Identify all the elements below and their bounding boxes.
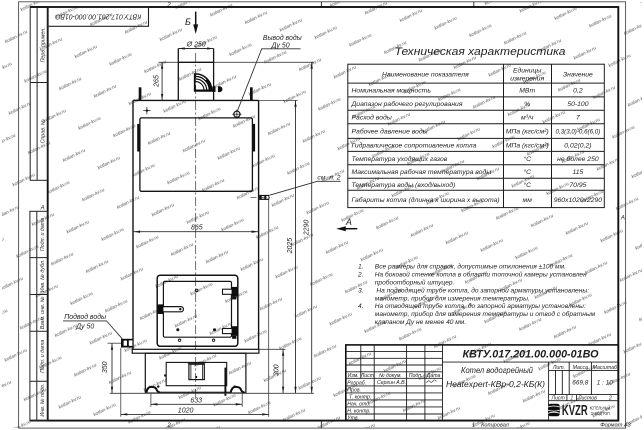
- svg-text:ЗАВОД РЭП: ЗАВОД РЭП: [591, 411, 610, 416]
- svg-text:50-100: 50-100: [567, 101, 588, 108]
- svg-text:На отводящей трубе котла, до з: На отводящей трубе котла, до запорной ар…: [375, 302, 586, 310]
- svg-text:Разраб.: Разраб.: [347, 380, 366, 386]
- svg-text:Инв. № дубл.: Инв. № дубл.: [40, 260, 46, 293]
- svg-text:манометр, прибор для измерения: манометр, прибор для измерения температу…: [375, 294, 530, 302]
- svg-text:960х1020х2290: 960х1020х2290: [554, 197, 603, 204]
- svg-text:4.: 4.: [358, 303, 364, 310]
- svg-text:%: %: [524, 101, 530, 108]
- svg-text:669,8: 669,8: [572, 380, 588, 387]
- svg-text:Расход воды: Расход воды: [352, 114, 392, 122]
- svg-text:МВт: МВт: [519, 88, 535, 95]
- svg-text:Единицы: Единицы: [513, 66, 541, 74]
- svg-text:КВТУ.017.201.00.000-01ВО: КВТУ.017.201.00.000-01ВО: [55, 12, 141, 21]
- svg-text:Максимальная рабочая температу: Максимальная рабочая температура воды: [352, 168, 492, 176]
- svg-text:см. п. 2: см. п. 2: [317, 175, 340, 182]
- svg-text:Н. контр.: Н. контр.: [347, 409, 370, 415]
- svg-text:не более 250: не более 250: [557, 155, 599, 163]
- svg-text:Сергин А.В.: Сергин А.В.: [377, 380, 406, 386]
- svg-text:Листов: Листов: [577, 396, 597, 402]
- svg-text:633: 633: [190, 397, 202, 404]
- svg-text:2025: 2025: [287, 238, 294, 255]
- svg-text:0,02(0,2): 0,02(0,2): [564, 142, 591, 149]
- svg-text:Лит.: Лит.: [552, 365, 565, 371]
- svg-text:Гидравлическое сопротивление к: Гидравлическое сопротивление котла: [352, 141, 477, 149]
- svg-text:Подп.: Подп.: [409, 373, 423, 379]
- svg-text:300: 300: [273, 364, 280, 376]
- svg-text:Габариты котла (длинна х ширин: Габариты котла (длинна х ширина х высота…: [352, 196, 500, 204]
- svg-text:КОТЕЛЬНЫЙ: КОТЕЛЬНЫЙ: [590, 405, 611, 410]
- svg-text:На подводящей трубе котла, до: На подводящей трубе котла, до запорной а…: [376, 287, 589, 295]
- svg-text:Т. контр.: Т. контр.: [349, 394, 371, 400]
- svg-text:Температура воды (вход/выход): Температура воды (вход/выход): [352, 181, 456, 189]
- svg-text:Рабочее давление воды: Рабочее давление воды: [352, 128, 428, 136]
- svg-text:Диапазон рабочего регулировани: Диапазон рабочего регулирования: [351, 100, 463, 108]
- svg-text:Ду 50: Ду 50: [271, 43, 290, 50]
- svg-text:Пров.: Пров.: [347, 387, 361, 393]
- svg-text:Подп. и дата: Подп. и дата: [40, 218, 46, 251]
- svg-text:115: 115: [572, 169, 583, 176]
- svg-text:1: 1: [472, 423, 475, 429]
- svg-text:Значение: Значение: [563, 71, 593, 78]
- svg-text:Инв. № подл.: Инв. № подл.: [40, 384, 46, 417]
- svg-text:°С: °С: [523, 181, 531, 189]
- svg-text:На боковой стенке котла в обла: На боковой стенке котла в области топочн…: [375, 271, 587, 279]
- svg-text:Нач. отд.: Нач. отд.: [347, 402, 370, 408]
- svg-text:Лист: Лист: [551, 396, 566, 402]
- svg-text:Вывод воды: Вывод воды: [263, 34, 302, 42]
- svg-text:Лист: Лист: [360, 373, 375, 379]
- svg-text:865: 865: [191, 224, 203, 231]
- svg-text:м³/ч: м³/ч: [521, 115, 534, 122]
- svg-text:Техническая характеристика: Техническая характеристика: [395, 46, 566, 58]
- svg-text:7: 7: [576, 115, 580, 122]
- svg-text:№ докум.: № докум.: [379, 373, 402, 379]
- svg-text:пробоотборный штуцер.: пробоотборный штуцер.: [375, 279, 455, 287]
- svg-text:Ø 250: Ø 250: [186, 41, 206, 48]
- svg-text:Heatexpert-КВр-0,2-КБ(К): Heatexpert-КВр-0,2-КБ(К): [446, 379, 545, 389]
- svg-text:Перв. примен.: Перв. примен.: [40, 27, 46, 62]
- svg-text:Б: Б: [185, 17, 191, 27]
- svg-text:2: 2: [608, 396, 612, 402]
- svg-text:МПа (кгс/см²): МПа (кгс/см²): [506, 129, 549, 136]
- svg-text:А: А: [620, 216, 625, 222]
- svg-text:Подвод воды: Подвод воды: [64, 313, 106, 321]
- svg-text:клапаном Ду не менее 40 мм.: клапаном Ду не менее 40 мм.: [375, 319, 467, 326]
- svg-text:Дата: Дата: [426, 373, 441, 379]
- svg-text:измерения: измерения: [510, 76, 544, 83]
- svg-text:3.: 3.: [358, 288, 364, 295]
- svg-text:Масса: Масса: [573, 365, 588, 371]
- svg-text:мм: мм: [523, 197, 533, 204]
- svg-text:2290: 2290: [304, 220, 311, 237]
- svg-text:0,3(3,0)-0,6(6,0): 0,3(3,0)-0,6(6,0): [556, 129, 601, 136]
- svg-text:Взам. инв. №: Взам. инв. №: [40, 296, 46, 329]
- svg-text:°С: °С: [523, 155, 531, 163]
- svg-text:Все размеры для справок, допус: Все размеры для справок, допустимые откл…: [375, 262, 566, 270]
- svg-text:KVZR: KVZR: [562, 403, 588, 419]
- svg-text:350: 350: [102, 361, 109, 373]
- svg-text:2.: 2.: [357, 272, 364, 279]
- svg-text:Справ. №: Справ. №: [40, 119, 46, 143]
- svg-text:Изм.: Изм.: [348, 373, 359, 379]
- svg-text:70/95: 70/95: [569, 182, 586, 189]
- svg-text:1020: 1020: [178, 407, 194, 414]
- svg-text:Ду 50: Ду 50: [75, 324, 94, 331]
- svg-text:Формат А3: Формат А3: [600, 423, 631, 429]
- svg-text:0,2: 0,2: [573, 88, 583, 95]
- svg-text:1: 1: [570, 396, 573, 402]
- svg-text:Наименование показателя: Наименование показателя: [382, 71, 469, 78]
- svg-text:Котел водогрейный: Котел водогрейный: [461, 365, 533, 375]
- svg-text:МПа (кгс/см²): МПа (кгс/см²): [506, 142, 549, 149]
- svg-text:КВТУ.017.201.00.000-01ВО: КВТУ.017.201.00.000-01ВО: [463, 349, 599, 361]
- svg-text:°С: °С: [523, 168, 531, 176]
- svg-text:А: А: [345, 217, 352, 227]
- svg-text:Температура уходящих газов: Температура уходящих газов: [352, 155, 448, 163]
- svg-text:Масштаб: Масштаб: [593, 365, 618, 371]
- svg-text:1 : 10: 1 : 10: [597, 380, 613, 387]
- svg-text:Утв.: Утв.: [347, 415, 359, 421]
- svg-text:А: А: [40, 206, 45, 212]
- svg-text:Подп. и дата: Подп. и дата: [40, 340, 46, 373]
- svg-text:манометр, прибор для измерения: манометр, прибор для измерения температу…: [375, 310, 596, 318]
- svg-text:Номинальная мощность: Номинальная мощность: [352, 88, 432, 95]
- svg-text:Копировал: Копировал: [481, 423, 510, 429]
- svg-text:265: 265: [154, 75, 161, 88]
- svg-text:2: 2: [166, 423, 171, 429]
- svg-text:1.: 1.: [358, 263, 364, 270]
